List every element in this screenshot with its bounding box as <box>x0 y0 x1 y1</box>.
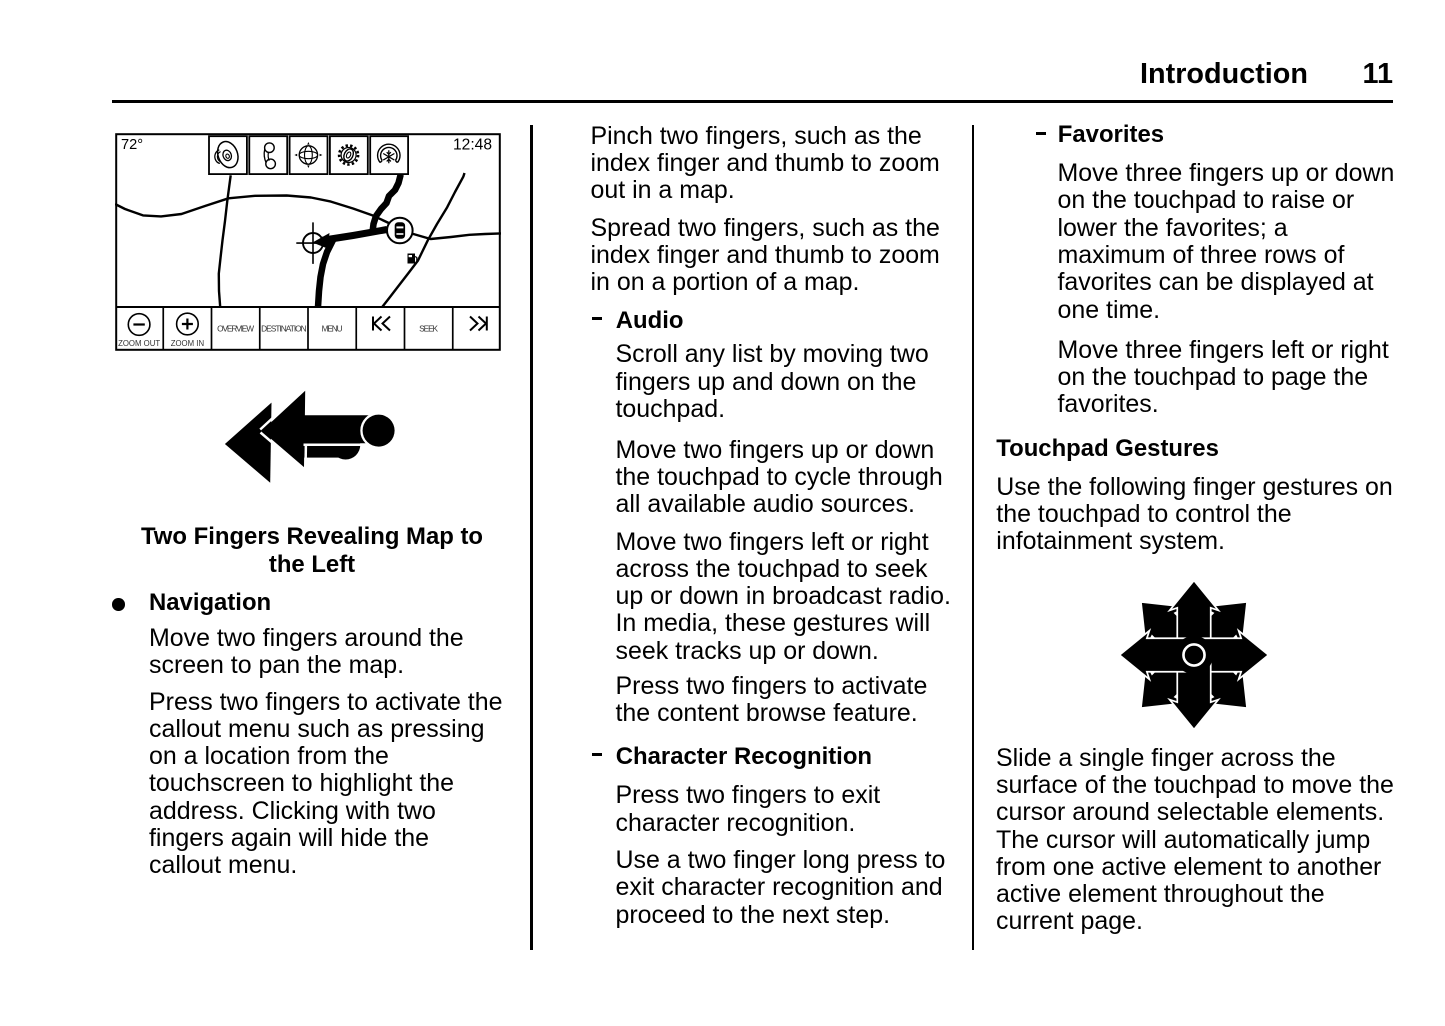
svg-text:SEEK: SEEK <box>419 324 438 334</box>
svg-text:12:48: 12:48 <box>453 137 492 154</box>
svg-text:ZOOM OUT: ZOOM OUT <box>118 339 160 348</box>
svg-text:MENU: MENU <box>322 324 343 334</box>
svg-text:OVERVIEW: OVERVIEW <box>217 324 254 334</box>
svg-text:72°: 72° <box>121 137 143 153</box>
svg-text:DESTINATION: DESTINATION <box>261 324 307 334</box>
svg-text:ZOOM IN: ZOOM IN <box>171 339 204 348</box>
